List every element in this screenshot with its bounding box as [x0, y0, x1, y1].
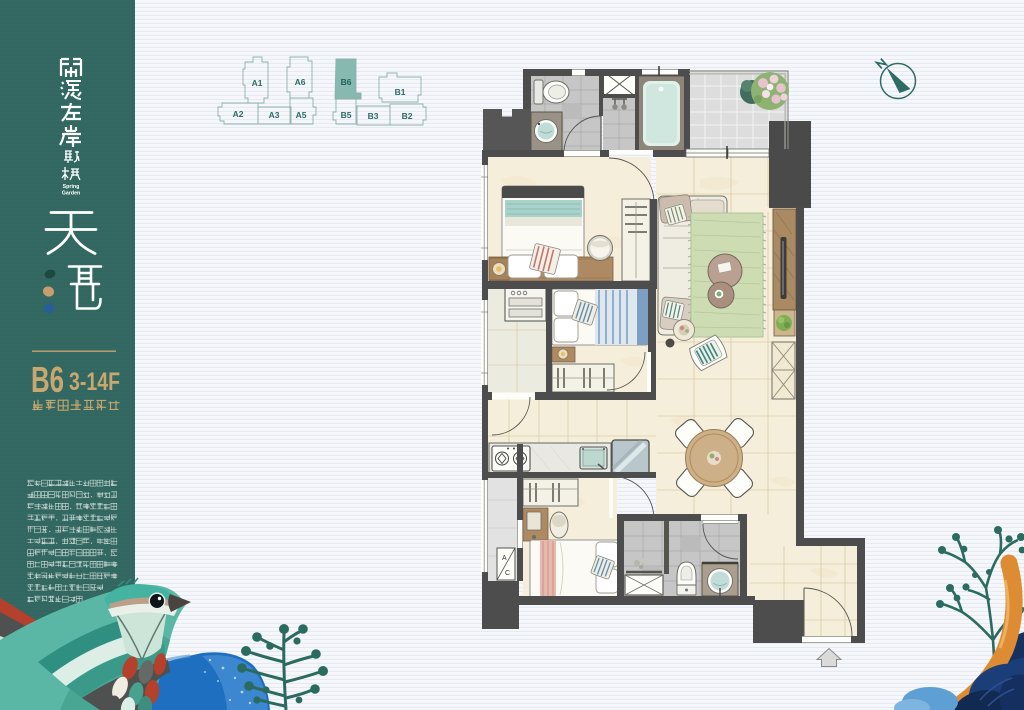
svg-text:B6: B6 [31, 359, 64, 400]
svg-text:Garden: Garden [62, 191, 81, 197]
svg-text:Spring: Spring [63, 184, 80, 190]
svg-text:B3: B3 [368, 111, 379, 121]
svg-text:B1: B1 [395, 87, 406, 97]
svg-text:A1: A1 [252, 78, 263, 88]
svg-text:A2: A2 [233, 109, 244, 119]
svg-text:A: A [502, 555, 507, 562]
svg-text:A5: A5 [296, 110, 307, 120]
svg-text:3-14F: 3-14F [69, 368, 120, 396]
svg-text:B6: B6 [341, 77, 352, 87]
svg-text:C: C [505, 570, 510, 577]
svg-text:A6: A6 [295, 77, 306, 87]
svg-text:B5: B5 [341, 110, 352, 120]
svg-text:B2: B2 [402, 111, 413, 121]
svg-text:A3: A3 [269, 110, 280, 120]
